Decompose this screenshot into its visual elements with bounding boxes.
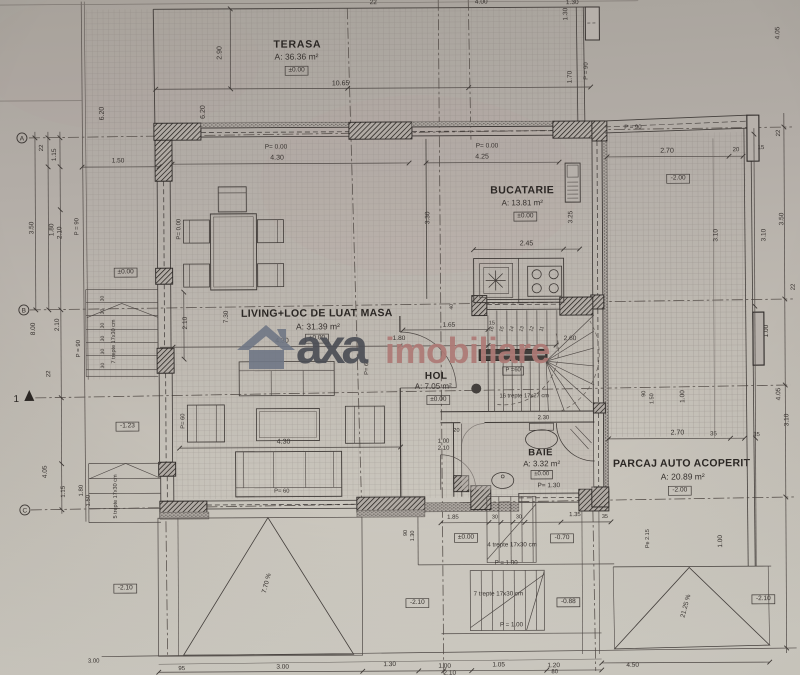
svg-text:1.50: 1.50 [112, 157, 125, 164]
svg-text:20: 20 [733, 147, 740, 153]
svg-text:P= 60: P= 60 [364, 360, 370, 375]
svg-text:axa: axa [296, 321, 368, 374]
svg-text:B: B [22, 307, 26, 314]
svg-text:2.70: 2.70 [660, 148, 674, 155]
svg-text:1.80: 1.80 [79, 484, 85, 496]
svg-text:3.00: 3.00 [276, 664, 289, 671]
svg-text:±0.00: ±0.00 [288, 66, 305, 73]
svg-text:3.00: 3.00 [88, 659, 100, 665]
svg-text:-2.10: -2.10 [410, 599, 425, 606]
svg-text:A: 3.32 m²: A: 3.32 m² [523, 459, 560, 468]
svg-text:3.30: 3.30 [424, 211, 431, 224]
svg-text:P= 0.00: P= 0.00 [265, 144, 288, 151]
svg-text:-0.70: -0.70 [555, 534, 570, 541]
svg-text:30: 30 [100, 349, 106, 355]
svg-text:3.25: 3.25 [567, 210, 574, 223]
svg-text:1.30: 1.30 [410, 531, 416, 542]
svg-text:4 trepte 17x30 cm: 4 trepte 17x30 cm [487, 541, 537, 548]
svg-text:1.65: 1.65 [443, 322, 456, 329]
svg-text:±0.00: ±0.00 [458, 534, 475, 541]
svg-text:2.60: 2.60 [564, 335, 577, 342]
svg-text:2.90: 2.90 [216, 46, 223, 60]
svg-text:3.50: 3.50 [778, 212, 785, 225]
svg-text:1.00: 1.00 [763, 324, 770, 337]
svg-text:6.20: 6.20 [200, 105, 207, 119]
svg-text:4.25: 4.25 [475, 154, 489, 161]
svg-text:P= 60: P= 60 [274, 489, 289, 495]
svg-text:1: 1 [13, 394, 19, 405]
svg-text:Pe 2.15: Pe 2.15 [645, 529, 651, 548]
svg-text:30: 30 [100, 323, 106, 329]
svg-text:15: 15 [758, 145, 765, 151]
svg-text:1.20: 1.20 [547, 662, 560, 669]
svg-text:P = 90: P = 90 [584, 62, 590, 80]
svg-text:-2.00: -2.00 [672, 486, 687, 493]
svg-text:4.50: 4.50 [626, 662, 639, 669]
svg-text:30: 30 [100, 336, 106, 342]
svg-text:1.85: 1.85 [447, 515, 459, 521]
svg-text:A: 7.05 m²: A: 7.05 m² [415, 382, 452, 391]
svg-text:-2.00: -2.00 [671, 175, 686, 182]
svg-text:1.30: 1.30 [383, 661, 396, 668]
svg-text:7.30: 7.30 [223, 310, 230, 323]
svg-text:1.70: 1.70 [567, 70, 574, 83]
svg-text:2.30: 2.30 [538, 415, 550, 421]
svg-text:16 trepte 17x27 cm: 16 trepte 17x27 cm [499, 393, 549, 399]
svg-text:P = 1.00: P = 1.00 [495, 559, 519, 566]
svg-text:P = 90: P = 90 [624, 125, 642, 131]
svg-text:1.05: 1.05 [492, 661, 505, 668]
svg-text:3.10: 3.10 [783, 413, 790, 426]
svg-text:22: 22 [370, 0, 378, 6]
svg-text:3.50: 3.50 [28, 221, 35, 234]
svg-text:22: 22 [776, 129, 782, 136]
svg-text:1.00: 1.00 [717, 535, 724, 548]
svg-text:90: 90 [403, 530, 409, 536]
svg-text:4.30: 4.30 [270, 155, 284, 162]
svg-text:2.45: 2.45 [520, 240, 534, 247]
svg-text:4.30: 4.30 [277, 439, 291, 446]
svg-text:LIVING+LOC DE LUAT MASA: LIVING+LOC DE LUAT MASA [241, 307, 393, 320]
svg-text:6.20: 6.20 [99, 107, 106, 121]
svg-text:2.70: 2.70 [671, 430, 685, 437]
svg-text:40: 40 [449, 304, 455, 310]
svg-text:TERASA: TERASA [273, 38, 321, 50]
svg-text:±0.00: ±0.00 [534, 471, 550, 477]
svg-text:P= 0.00: P= 0.00 [476, 142, 499, 149]
svg-text:22: 22 [39, 144, 45, 151]
svg-text:1.80: 1.80 [48, 223, 55, 236]
svg-text:10.65: 10.65 [332, 80, 350, 87]
svg-text:2.10: 2.10 [438, 446, 450, 452]
svg-text:3.10: 3.10 [712, 229, 719, 242]
svg-text:35: 35 [753, 432, 760, 438]
svg-text:1.00: 1.00 [438, 663, 451, 670]
svg-text:30: 30 [100, 309, 106, 315]
svg-text:1.00: 1.00 [438, 439, 450, 445]
svg-text:8.00: 8.00 [30, 322, 37, 335]
svg-text:-0.88: -0.88 [561, 598, 576, 605]
svg-text:P = 90: P = 90 [76, 339, 82, 357]
svg-text:A: A [20, 135, 25, 142]
svg-text:4.05: 4.05 [42, 465, 49, 478]
svg-text:30: 30 [100, 363, 106, 369]
svg-text:-2.10: -2.10 [118, 584, 133, 591]
svg-text:4.05: 4.05 [775, 387, 782, 400]
svg-text:P= 0.00: P= 0.00 [176, 218, 182, 240]
svg-text:80: 80 [551, 669, 558, 675]
svg-text:90: 90 [641, 391, 647, 397]
svg-text:1.15: 1.15 [51, 148, 58, 161]
svg-text:±0.00: ±0.00 [517, 212, 534, 219]
svg-text:30: 30 [516, 514, 522, 520]
svg-text:P = 90: P = 90 [74, 217, 80, 235]
svg-text:P = 1.00: P = 1.00 [500, 621, 524, 628]
svg-text:35: 35 [710, 431, 717, 437]
svg-text:1.30: 1.30 [566, 0, 579, 6]
svg-text:30: 30 [100, 296, 106, 302]
svg-text:1.15: 1.15 [61, 485, 67, 497]
svg-text:35: 35 [602, 514, 608, 520]
svg-text:15: 15 [489, 321, 495, 327]
svg-text:A: 13.81 m²: A: 13.81 m² [502, 198, 544, 207]
svg-text:imobiliare: imobiliare [385, 330, 550, 371]
svg-text:2.10: 2.10 [182, 316, 189, 329]
svg-text:1.00: 1.00 [679, 390, 686, 403]
svg-text:20: 20 [453, 428, 459, 434]
svg-text:5 trepte 17x30 cm: 5 trepte 17x30 cm [113, 474, 119, 518]
svg-text:95: 95 [178, 666, 185, 672]
svg-text:1.30: 1.30 [562, 7, 569, 20]
svg-text:C: C [23, 507, 28, 514]
svg-text:4.00: 4.00 [475, 0, 488, 6]
svg-text:30: 30 [492, 514, 498, 520]
svg-text:±0.00: ±0.00 [118, 268, 135, 275]
svg-text:7 trepte 17x30 cm: 7 trepte 17x30 cm [111, 319, 117, 363]
svg-text:4.05: 4.05 [774, 26, 781, 39]
svg-text:BUCATARIE: BUCATARIE [490, 184, 554, 196]
svg-text:2.10: 2.10 [443, 670, 456, 675]
svg-text:HOL: HOL [425, 371, 448, 382]
svg-text:1.35: 1.35 [569, 512, 581, 518]
svg-text:22: 22 [46, 370, 52, 377]
svg-text:22: 22 [791, 283, 797, 290]
svg-text:PARCAJ AUTO ACOPERIT: PARCAJ AUTO ACOPERIT [613, 457, 751, 470]
svg-text:2.10: 2.10 [56, 226, 63, 239]
svg-text:P= 60: P= 60 [180, 413, 186, 428]
svg-text:±0.00: ±0.00 [430, 396, 447, 403]
svg-text:A: 36.36 m²: A: 36.36 m² [275, 51, 319, 61]
svg-text:7 trepte 17x30 cm: 7 trepte 17x30 cm [474, 590, 524, 597]
svg-text:3.10: 3.10 [760, 228, 767, 241]
svg-text:1.50: 1.50 [649, 393, 655, 404]
svg-text:A: 20.89 m²: A: 20.89 m² [661, 471, 705, 481]
svg-text:-1.23: -1.23 [120, 422, 135, 429]
svg-text:P= 1.30: P= 1.30 [537, 482, 560, 489]
svg-text:2.10: 2.10 [54, 318, 61, 331]
